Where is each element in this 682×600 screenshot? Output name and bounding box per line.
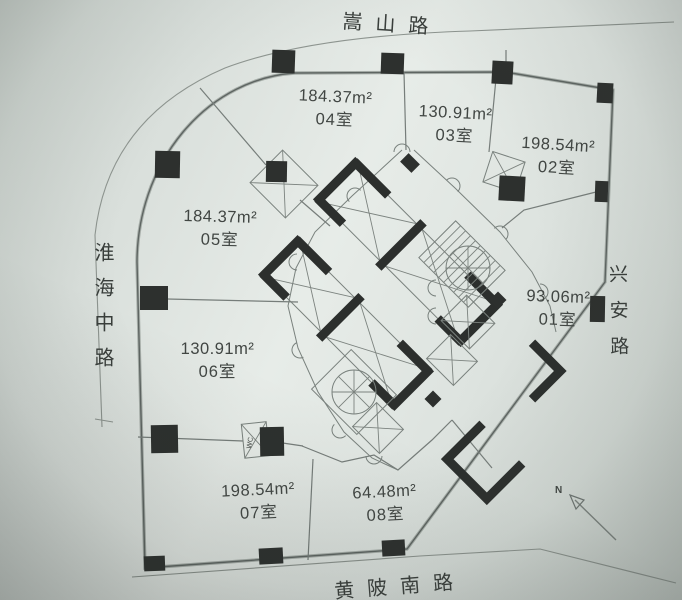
- north-label: N: [555, 485, 562, 496]
- room-label-01: 93.06m² 01室: [507, 284, 609, 333]
- shaft-cell: [353, 403, 404, 454]
- room-area: 130.91m²: [155, 338, 280, 361]
- room-area: 184.37m²: [160, 204, 281, 230]
- wc-label: WC: [246, 437, 255, 450]
- room-label-08: 64.48m² 08室: [329, 478, 441, 530]
- floor-plan-photo: WC: [0, 0, 682, 600]
- room-number: 05室: [159, 227, 280, 253]
- shaft-cell: [441, 295, 495, 349]
- room-area: 93.06m²: [508, 284, 609, 310]
- room-label-04: 184.37m² 04室: [269, 83, 401, 135]
- stair-round-upper: [446, 246, 490, 290]
- room-label-07: 198.54m² 07室: [195, 476, 322, 527]
- room-number: 01室: [507, 307, 608, 333]
- room-label-03: 130.91m² 03室: [399, 99, 511, 151]
- room-label-02: 198.54m² 02室: [504, 131, 612, 183]
- shaft-cell: [427, 335, 478, 386]
- north-arrow: N: [555, 485, 616, 540]
- room-number: 06室: [155, 361, 280, 384]
- road-label-left: 淮海中路: [88, 242, 117, 402]
- stair-round-lower-circle: [332, 370, 376, 414]
- room-label-06: 130.91m² 06室: [155, 338, 280, 384]
- room-label-05: 184.37m² 05室: [159, 204, 280, 253]
